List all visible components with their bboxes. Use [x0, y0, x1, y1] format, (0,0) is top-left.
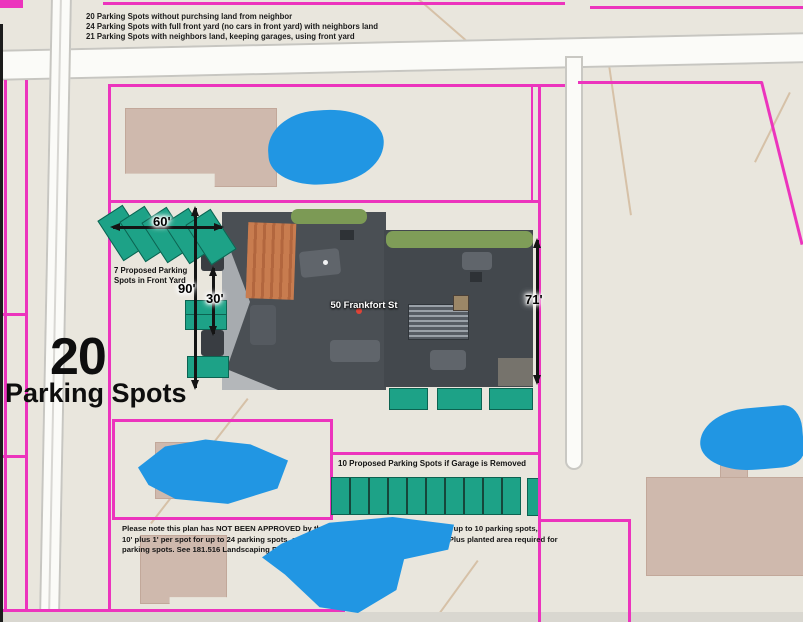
parcel-boundary-line — [578, 81, 762, 84]
parcel-boundary-line — [540, 519, 631, 522]
parking-stall — [332, 478, 351, 514]
street-address-label: 50 Frankfort St — [310, 300, 418, 311]
tree-foliage-strip — [386, 231, 533, 248]
parcel-boundary-line — [103, 2, 565, 5]
parking-stall — [427, 478, 446, 514]
map-bottom-strip — [0, 612, 803, 622]
headline-label: Parking Spots — [5, 380, 187, 407]
parcel-boundary-line — [0, 313, 27, 316]
parking-spot — [489, 388, 533, 410]
parcel-boundary-line — [108, 84, 565, 87]
neighbor-building-top-left — [125, 108, 277, 187]
dimension-line-71 — [536, 240, 539, 383]
option-line: 20 Parking Spots without purchsing land … — [86, 12, 466, 22]
arrowhead — [110, 223, 120, 231]
parking-spot — [437, 388, 482, 410]
dimension-label-30: 30' — [206, 291, 224, 306]
road-vertical-left — [39, 0, 72, 622]
parking-stall — [446, 478, 465, 514]
roof-patch — [250, 305, 276, 345]
parking-stall — [370, 478, 389, 514]
arrowhead — [191, 206, 199, 216]
parking-stall — [465, 478, 484, 514]
parcel-boundary-line — [0, 609, 345, 612]
copper-roof-section — [246, 222, 297, 300]
option-line: 24 Parking Spots with full front yard (n… — [86, 22, 466, 32]
parcel-boundary-line — [25, 80, 28, 610]
parking-stall — [408, 478, 427, 514]
tree-marker — [697, 404, 803, 475]
arrowhead — [214, 223, 224, 231]
parking-stall — [484, 478, 503, 514]
parking-stall — [351, 478, 370, 514]
parcel-boundary-line — [0, 455, 27, 458]
arrowhead — [191, 380, 199, 390]
front-yard-annotation-line: 7 Proposed Parking — [114, 266, 204, 276]
front-yard-annotation-line: Spots in Front Yard — [114, 276, 204, 286]
front-yard-angled-stalls — [102, 203, 252, 267]
roof-dot — [323, 260, 328, 265]
parcel-boundary-line — [330, 452, 540, 455]
parcel-boundary-line — [108, 85, 111, 610]
option-line: 21 Parking Spots with neighbors land, ke… — [86, 32, 466, 42]
parking-stall — [389, 478, 408, 514]
dimension-label-71: 71' — [525, 292, 543, 307]
roof-patch — [430, 350, 466, 370]
parcel-boundary-line — [4, 80, 7, 610]
screenshot-edge — [0, 24, 3, 622]
parking-spot — [185, 314, 227, 330]
garage-removed-annotation: 10 Proposed Parking Spots if Garage is R… — [338, 459, 538, 468]
roof-patch — [330, 340, 380, 362]
headline-count: 20 — [50, 331, 106, 383]
arrowhead — [533, 238, 541, 248]
arrowhead — [209, 326, 217, 336]
parcel-corner-block — [0, 0, 23, 8]
dimension-line-90 — [194, 208, 197, 388]
parcel-boundary-line — [531, 85, 533, 203]
concrete-pad — [498, 358, 533, 386]
roof-vent — [470, 272, 482, 282]
parcel-boundary-line — [628, 519, 631, 622]
driveway-dead-end — [565, 56, 583, 470]
roof-vent — [340, 230, 354, 240]
tree-marker — [266, 106, 387, 188]
garage-removed-stall-row — [331, 477, 521, 515]
chimney — [453, 295, 469, 311]
neighbor-building-right — [646, 477, 803, 576]
front-yard-annotation: 7 Proposed Parking Spots in Front Yard — [114, 266, 204, 285]
parcel-boundary-line — [590, 6, 803, 9]
roof-patch — [299, 248, 341, 278]
parking-stall — [503, 478, 520, 514]
roof-patch — [462, 252, 492, 270]
parking-plan-map: 50 Frankfort St 60' 90' 30' 71' 20 Parki… — [0, 0, 803, 622]
parking-spot — [389, 388, 428, 410]
arrowhead — [533, 375, 541, 385]
parking-options-list: 20 Parking Spots without purchsing land … — [86, 12, 466, 42]
arrowhead — [209, 266, 217, 276]
tree-foliage-strip — [291, 209, 367, 224]
dimension-label-60: 60' — [153, 214, 171, 229]
